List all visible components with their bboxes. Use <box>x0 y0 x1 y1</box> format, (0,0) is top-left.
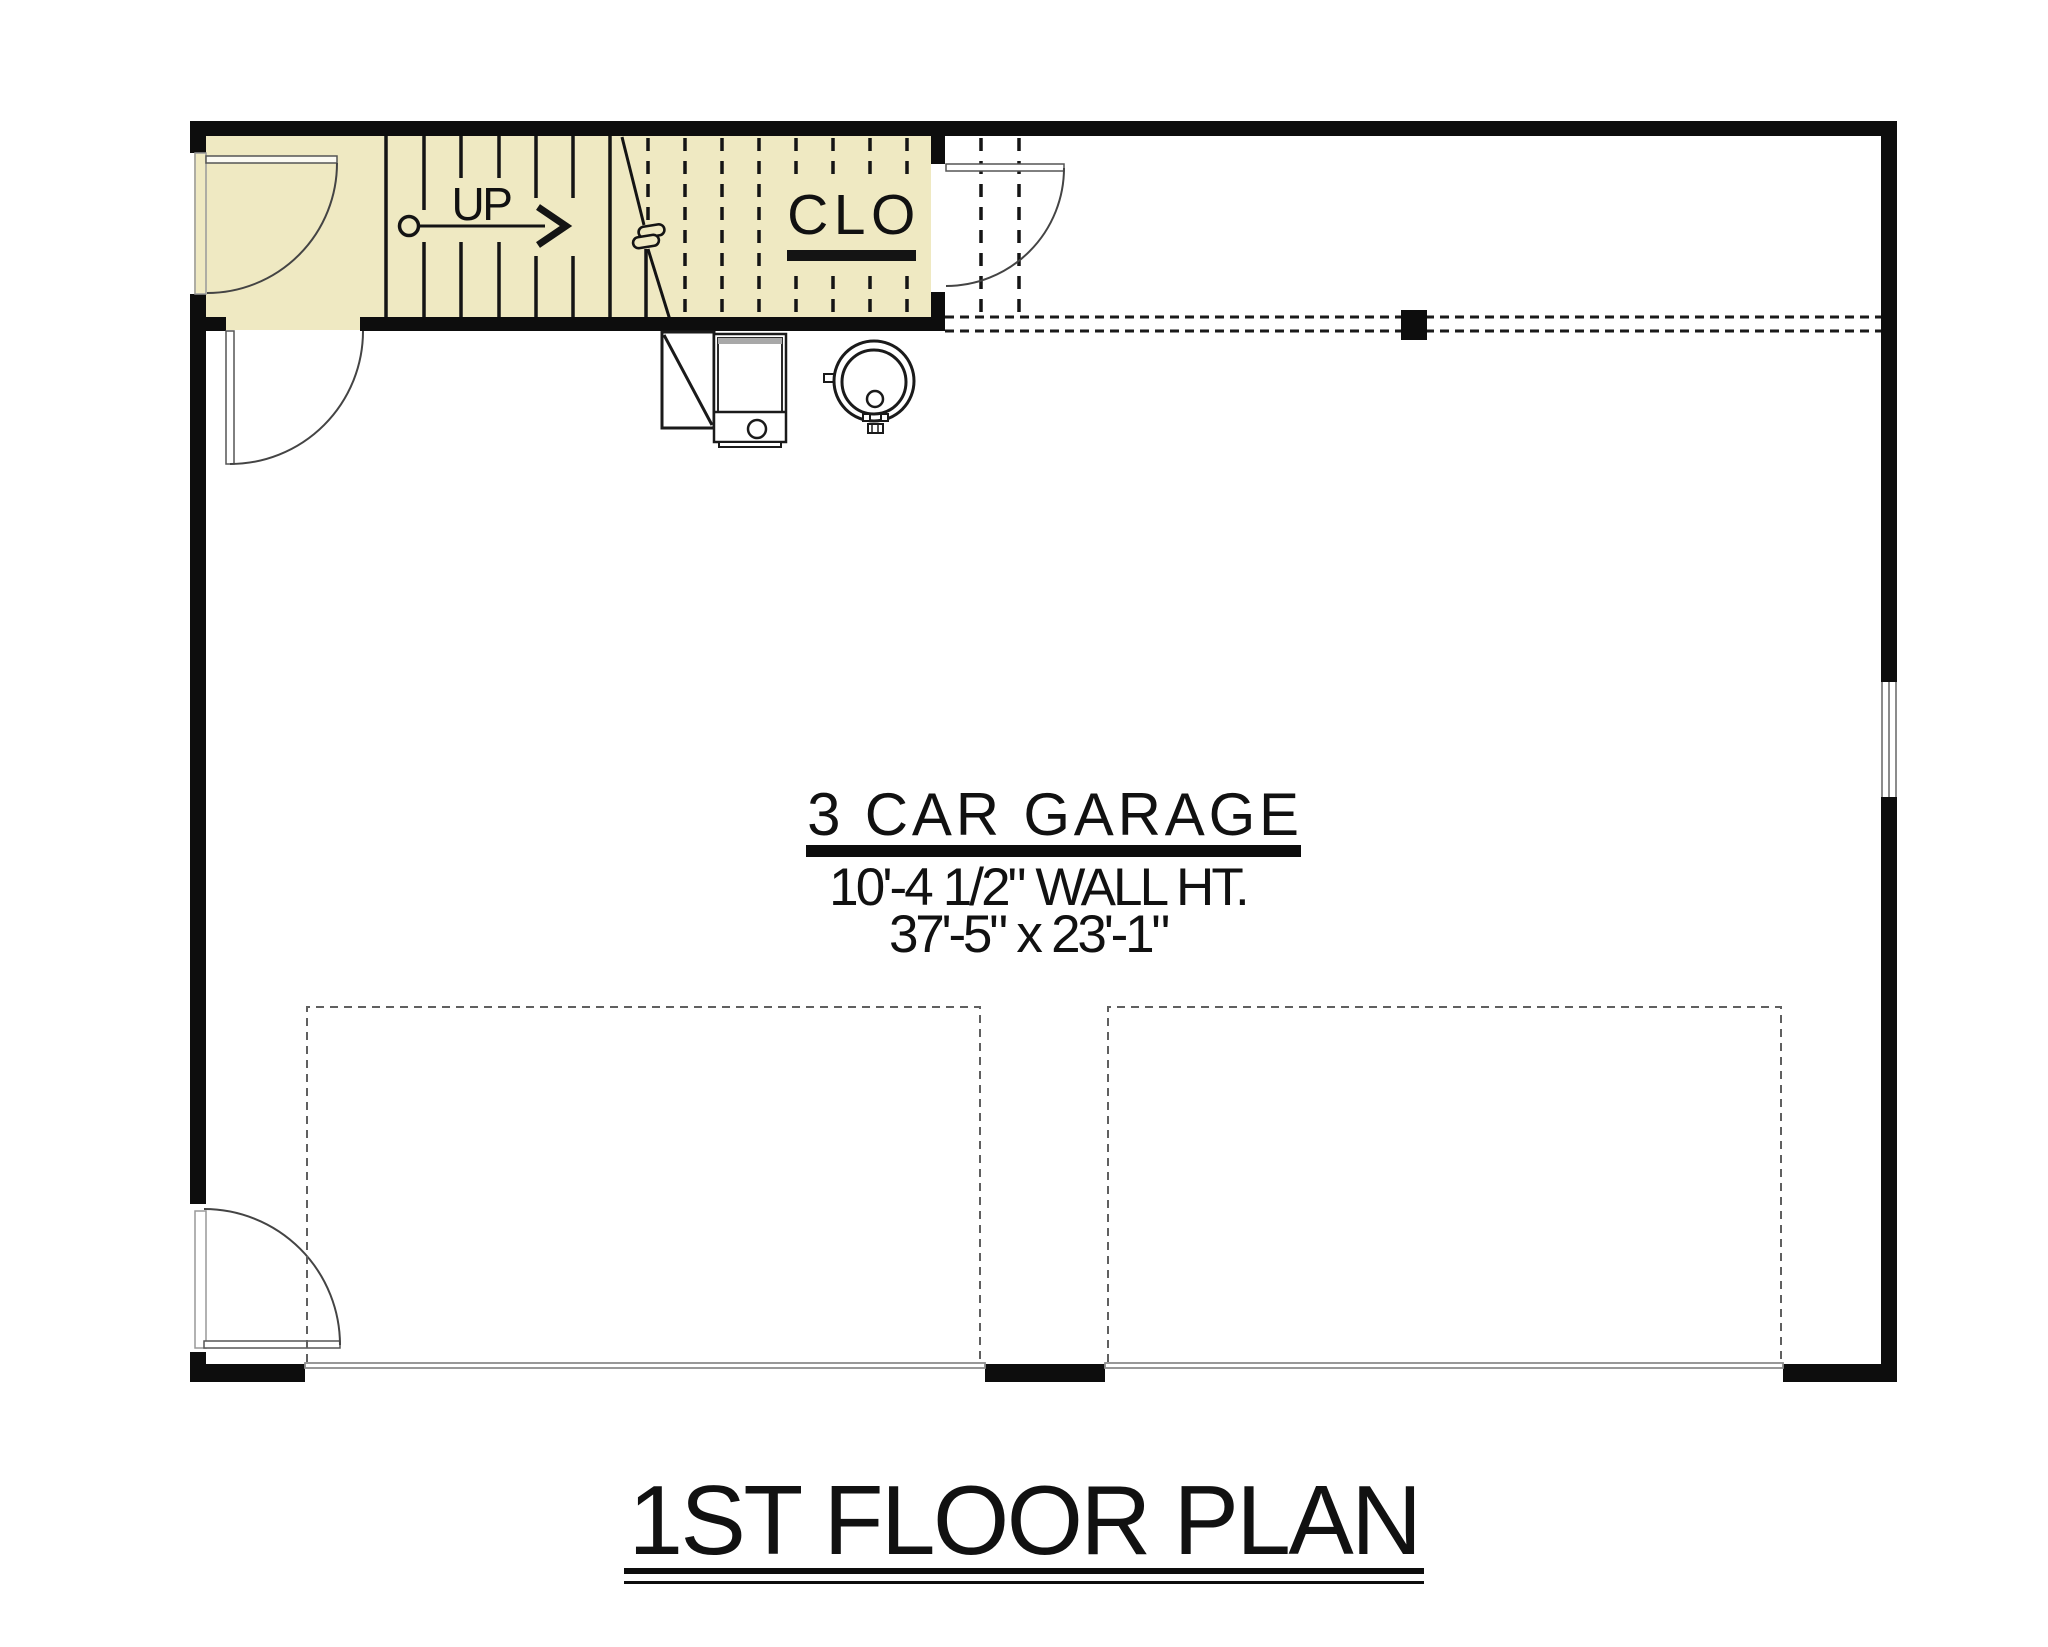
svg-text:UP: UP <box>452 178 512 230</box>
svg-text:CLO: CLO <box>787 183 921 247</box>
svg-text:3 CAR GARAGE: 3 CAR GARAGE <box>807 781 1303 848</box>
svg-text:37'-5" x 23'-1": 37'-5" x 23'-1" <box>889 905 1168 964</box>
svg-text:1ST FLOOR PLAN: 1ST FLOOR PLAN <box>628 1465 1419 1575</box>
